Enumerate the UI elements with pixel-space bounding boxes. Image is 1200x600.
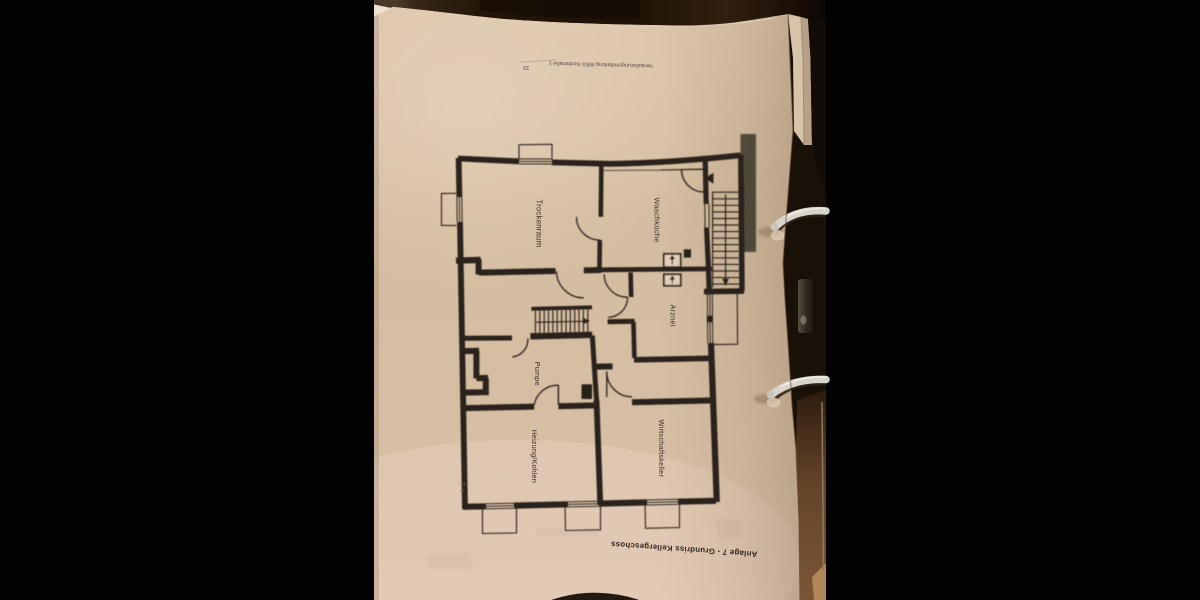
svg-text:Heizung/Kohlen: Heizung/Kohlen xyxy=(530,430,539,484)
svg-text:Waschküche: Waschküche xyxy=(653,198,662,243)
svg-text:Trockenraum: Trockenraum xyxy=(535,200,544,248)
svg-text:Pumpe: Pumpe xyxy=(533,362,542,386)
svg-text:Arznei: Arznei xyxy=(669,305,678,327)
svg-text:Wirtschaftskeller: Wirtschaftskeller xyxy=(657,420,666,478)
svg-text:23: 23 xyxy=(523,64,529,70)
